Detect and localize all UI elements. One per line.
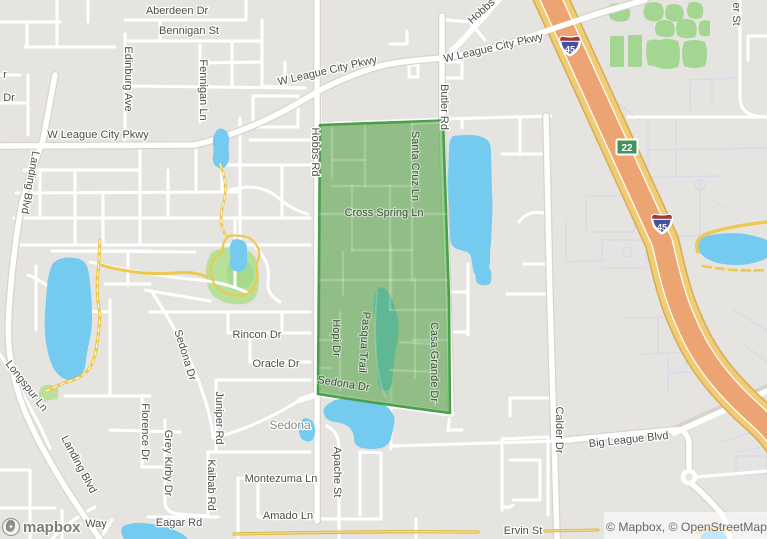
svg-text:Santa Cruz Ln: Santa Cruz Ln — [409, 131, 421, 201]
svg-text:Edinburg Ave: Edinburg Ave — [122, 46, 134, 111]
svg-text:Way: Way — [85, 518, 107, 530]
svg-text:Hobbs Rd: Hobbs Rd — [309, 128, 321, 177]
svg-text:Aberdeen Dr: Aberdeen Dr — [146, 5, 209, 17]
svg-text:Florence Dr: Florence Dr — [139, 403, 151, 461]
svg-text:Oracle Dr: Oracle Dr — [252, 358, 299, 370]
svg-text:Bennigan St: Bennigan St — [159, 25, 219, 37]
svg-text:22: 22 — [621, 143, 633, 154]
svg-text:Kaibab Rd: Kaibab Rd — [205, 459, 217, 510]
svg-text:Dr: Dr — [3, 92, 15, 104]
svg-text:© Mapbox, © OpenStreetMap: © Mapbox, © OpenStreetMap — [606, 520, 767, 534]
svg-text:Calder Dr: Calder Dr — [553, 406, 565, 453]
svg-text:45: 45 — [657, 222, 667, 232]
svg-text:Ervin St: Ervin St — [504, 525, 543, 537]
svg-text:Montezuma Ln: Montezuma Ln — [245, 473, 318, 485]
svg-text:er St: er St — [730, 2, 742, 25]
svg-text:r: r — [3, 69, 7, 81]
svg-text:45: 45 — [565, 44, 575, 54]
svg-text:Sedona: Sedona — [269, 418, 311, 432]
svg-text:Fennigan Ln: Fennigan Ln — [197, 59, 209, 120]
svg-text:mapbox: mapbox — [23, 519, 81, 536]
svg-text:Apache St: Apache St — [331, 447, 343, 498]
svg-text:Juniper Rd: Juniper Rd — [213, 391, 225, 444]
svg-text:Eagar Rd: Eagar Rd — [156, 517, 202, 529]
svg-text:Casa Grande Dr: Casa Grande Dr — [428, 322, 440, 402]
svg-text:Cross Spring Ln: Cross Spring Ln — [345, 207, 424, 219]
svg-text:Hopi Dr: Hopi Dr — [330, 319, 342, 357]
svg-text:Amado Ln: Amado Ln — [263, 510, 313, 522]
svg-text:Butler Rd: Butler Rd — [438, 84, 450, 130]
svg-text:W League City Pkwy: W League City Pkwy — [47, 129, 149, 141]
svg-text:Grey Kirby Dr: Grey Kirby Dr — [162, 430, 174, 497]
svg-text:Rincon Dr: Rincon Dr — [233, 329, 282, 341]
